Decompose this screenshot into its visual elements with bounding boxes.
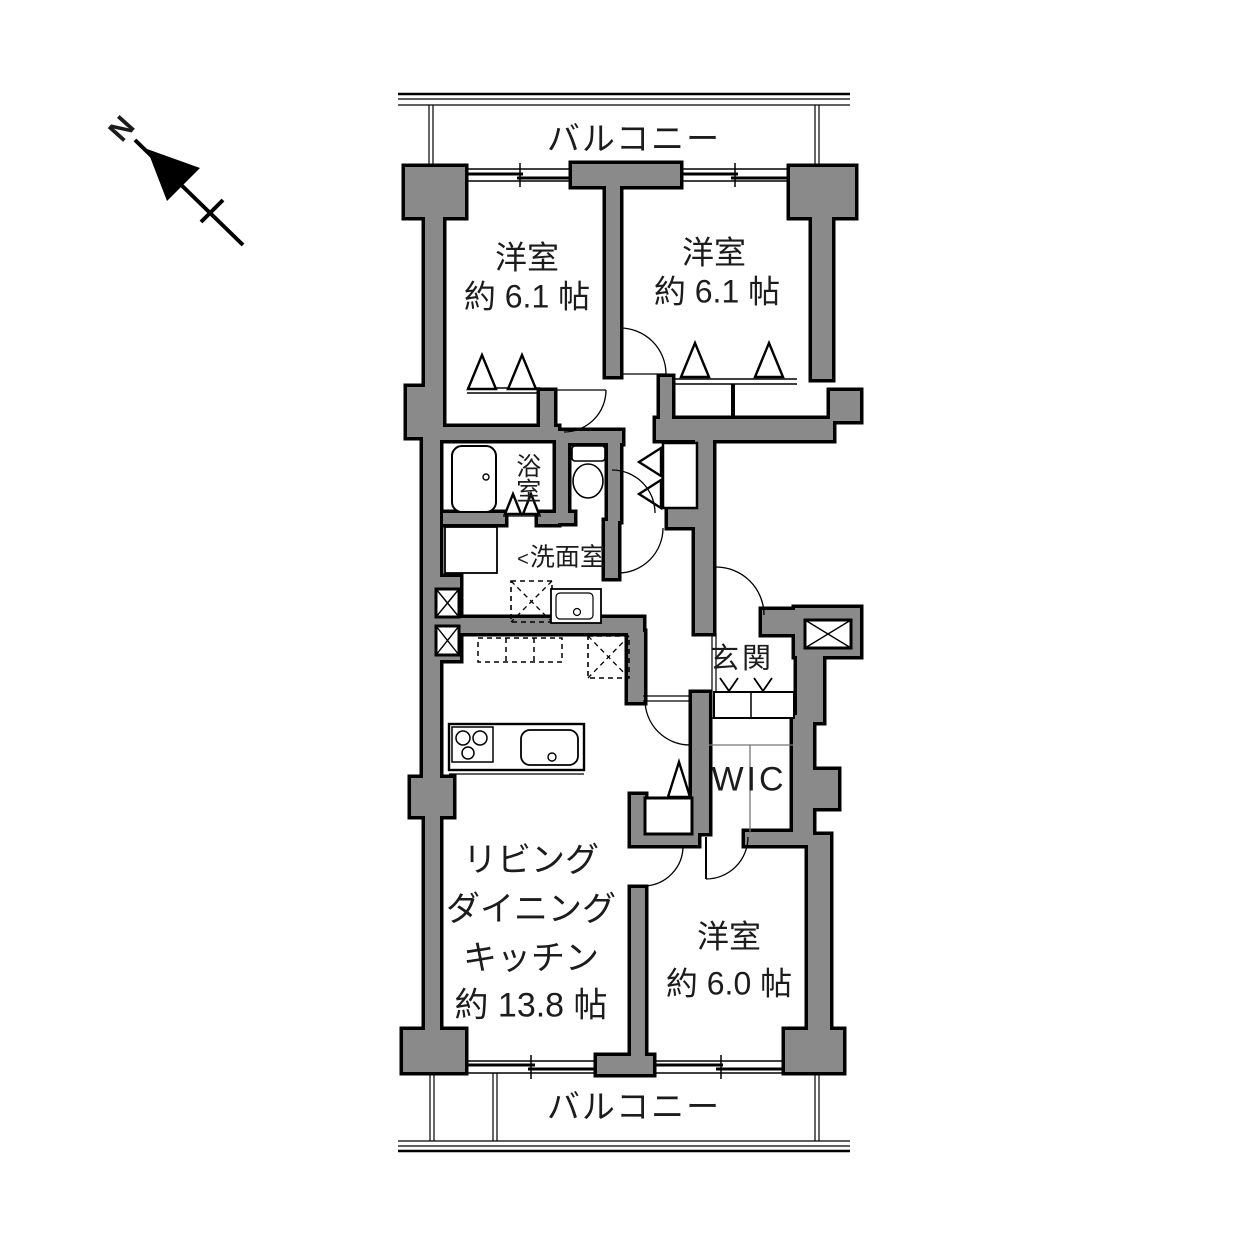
washroom-door [618,528,663,573]
balcony-bottom-label: バルコニー [547,1089,721,1125]
floor-plan: N バルコニー バルコニー 洋室 約 6.1 帖 洋室 約 6.1 帖 浴室 <… [0,0,1252,1252]
closet-door-icon [468,355,496,389]
shoe-cabinet [714,692,794,718]
linen-closet [663,443,697,508]
ldk-door [645,700,690,745]
washroom-counter [445,527,497,573]
north-compass-icon [135,140,243,245]
hall-closet-door-icon [668,762,690,797]
bedroom3-size: 約 6.0 帖 [666,966,792,1001]
bathtub-drain [483,474,489,480]
refrigerator-space [588,636,629,678]
front-door [716,567,764,615]
bedroom2-name: 洋室 [682,235,746,270]
bedroom2-size: 約 6.1 帖 [654,274,780,309]
bedroom2-door [620,328,666,374]
ldk-label-line3: キッチン [463,940,599,977]
washroom-pointer-icon: < [517,548,529,570]
pipe-space-icon [436,589,459,617]
bath-label: 浴室 [512,453,540,503]
shoe-cabinet-door-icon [720,678,738,691]
toilet-tank [572,446,605,461]
bedroom1-size: 約 6.1 帖 [464,279,590,314]
shoe-cabinet-door-icon [754,678,772,691]
bathtub [452,446,496,512]
closet-door-icon [755,343,783,377]
bedroom1-name: 洋室 [495,240,559,275]
floor-plan-drawing [0,0,1252,1252]
balcony-top-label: バルコニー [547,121,721,157]
toilet-bowl [573,464,603,498]
entrance-label: 玄関 [710,644,774,676]
closet-door-icon [508,355,536,389]
ldk-label-line2: ダイニング [446,891,616,928]
kitchen-counter [449,724,584,774]
bedroom3-door [645,846,683,886]
linen-door-icon [639,448,661,476]
ldk-label-line1: リビング [463,842,599,879]
wic-label: WIC [711,761,786,798]
vanity-sink [551,589,601,623]
bedroom3-name: 洋室 [697,919,761,954]
meter-box-icon [805,620,851,648]
ldk-size: 約 13.8 帖 [454,987,607,1024]
kitchen-cabinet-dashed [478,638,562,662]
washroom-label: <洗面室 [517,544,605,572]
bedroom1-door [564,390,606,432]
hall-closet [645,798,692,834]
pipe-space-icon [436,626,459,655]
closet-door-icon [681,343,709,377]
